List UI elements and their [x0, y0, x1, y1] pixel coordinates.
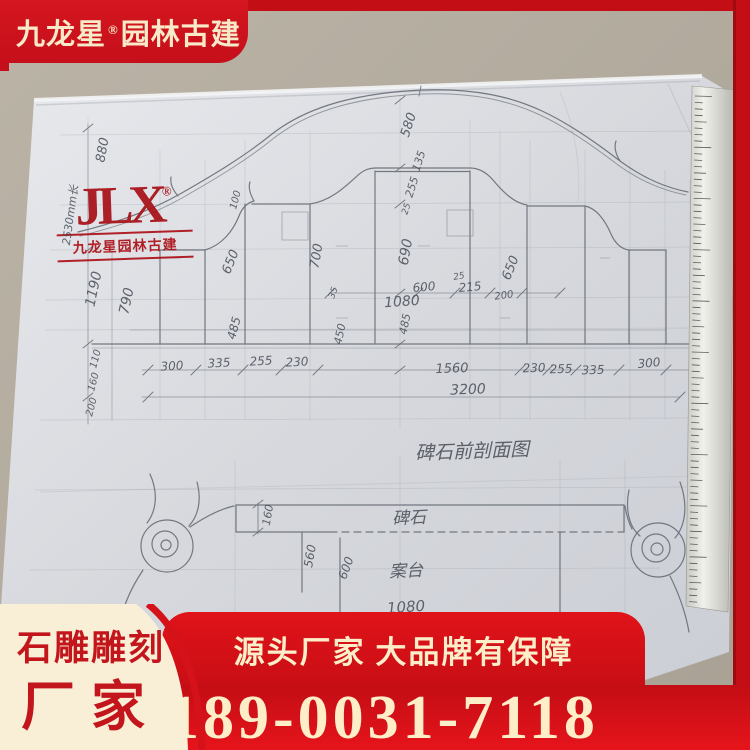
registered-mark: ® — [162, 183, 172, 198]
stamp-caption: 九龙星园林古建 — [57, 230, 194, 263]
brand-banner-notch — [0, 63, 9, 71]
registered-mark: ® — [108, 22, 119, 37]
steel-ruler — [686, 86, 736, 612]
brand-name: 九龙星®园林古建 — [16, 11, 241, 53]
slogan-banner: 源头厂家 大品牌有保障 — [162, 612, 645, 686]
stamp-monogram: JLX® — [54, 166, 192, 233]
brand-banner: 九龙星®园林古建 — [0, 0, 248, 63]
company-stamp: JLX® 九龙星园林古建 — [54, 166, 193, 263]
card-title-line2: 厂家 — [21, 662, 161, 741]
factory-card: 石雕雕刻 厂家 — [0, 604, 210, 750]
right-red-strip — [733, 0, 750, 750]
product-photo: JLX® 九龙星园林古建 8802530mm长11907901101602001… — [0, 0, 750, 750]
slogan-text: 源头厂家 大品牌有保障 — [234, 627, 574, 672]
phone-number: 189-0031-7118 — [168, 687, 599, 749]
